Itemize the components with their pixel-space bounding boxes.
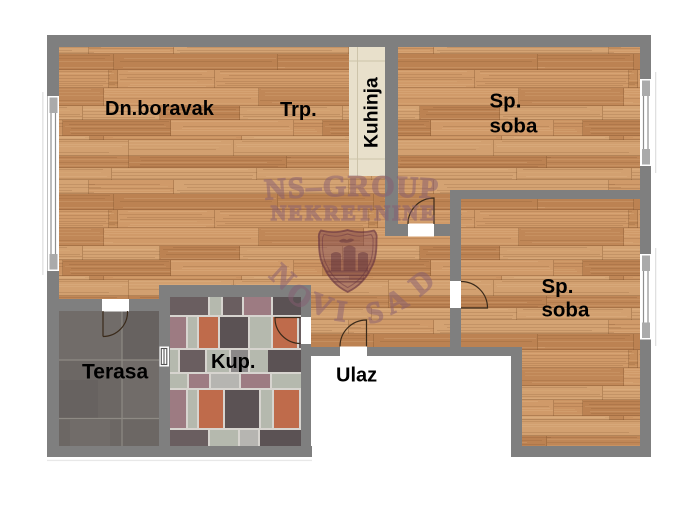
svg-text:NEKRETNINE: NEKRETNINE (271, 201, 437, 225)
svg-text:Kuhinja: Kuhinja (362, 77, 383, 148)
svg-text:soba: soba (542, 299, 590, 322)
svg-text:Sp.: Sp. (490, 90, 522, 113)
svg-text:Dn.boravak: Dn.boravak (105, 98, 215, 120)
svg-text:Trp.: Trp. (280, 99, 317, 121)
svg-text:Ulaz: Ulaz (336, 365, 377, 387)
svg-text:Terasa: Terasa (82, 361, 148, 384)
svg-text:Sp.: Sp. (542, 275, 574, 298)
svg-text:Kup.: Kup. (211, 351, 255, 373)
svg-text:soba: soba (490, 115, 538, 138)
